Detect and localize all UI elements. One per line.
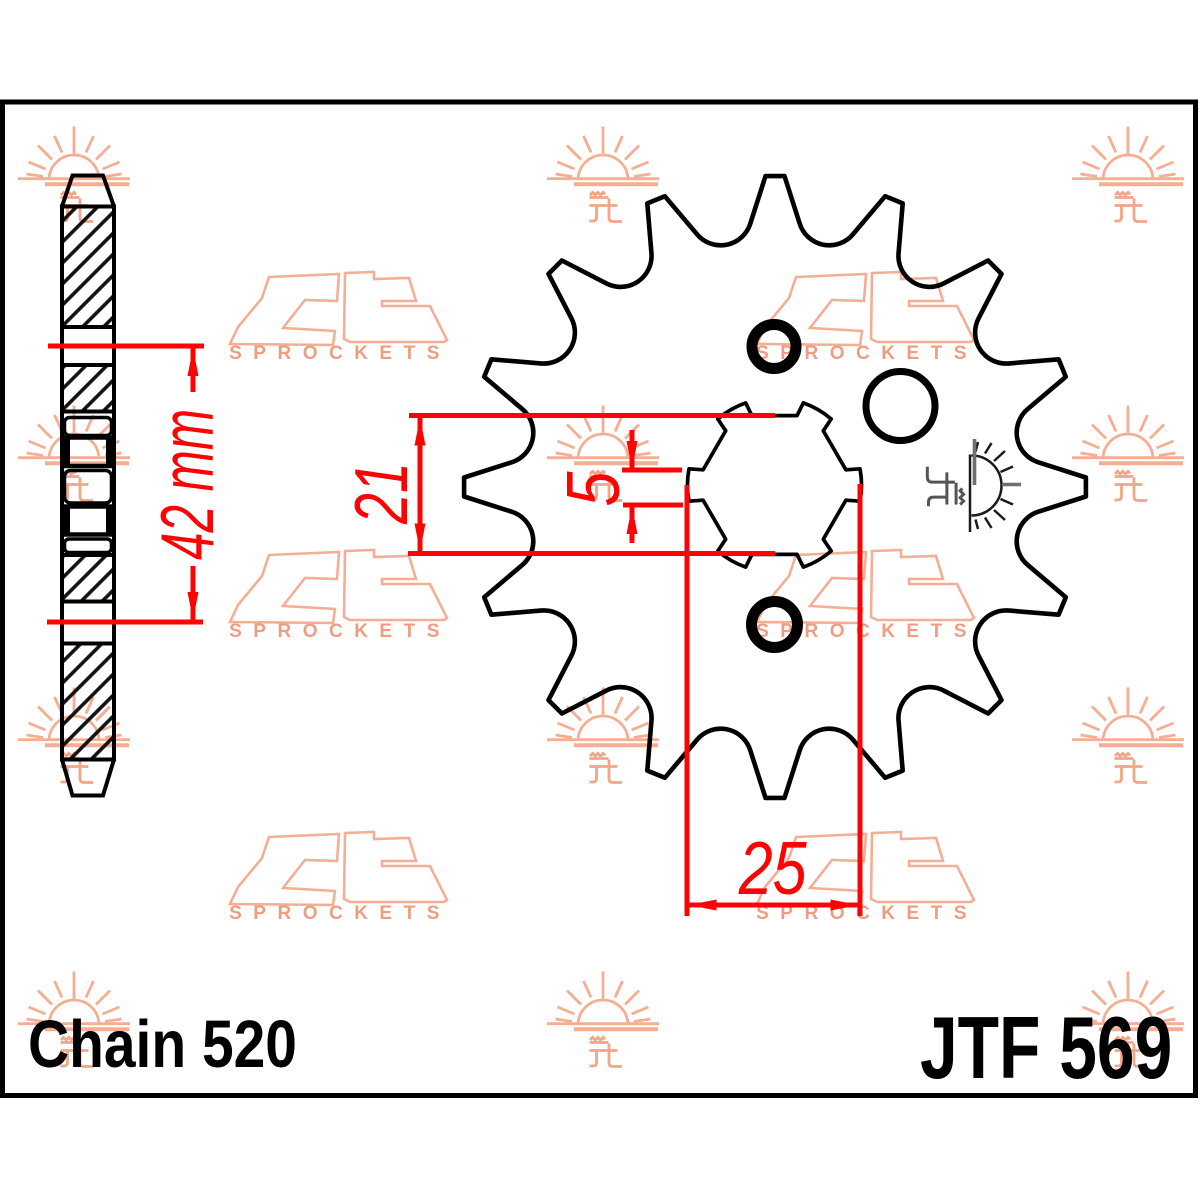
svg-text:SPROCKETS: SPROCKETS — [229, 903, 451, 924]
svg-text:42 mm: 42 mm — [145, 409, 229, 560]
svg-text:SPROCKETS: SPROCKETS — [229, 621, 451, 642]
svg-text:SPROCKETS: SPROCKETS — [229, 343, 451, 364]
svg-text:Chain 520: Chain 520 — [28, 1008, 297, 1082]
svg-text:JTF 569: JTF 569 — [920, 998, 1172, 1097]
svg-text:5: 5 — [551, 471, 635, 506]
svg-text:21: 21 — [339, 462, 423, 525]
svg-text:25: 25 — [738, 826, 807, 910]
